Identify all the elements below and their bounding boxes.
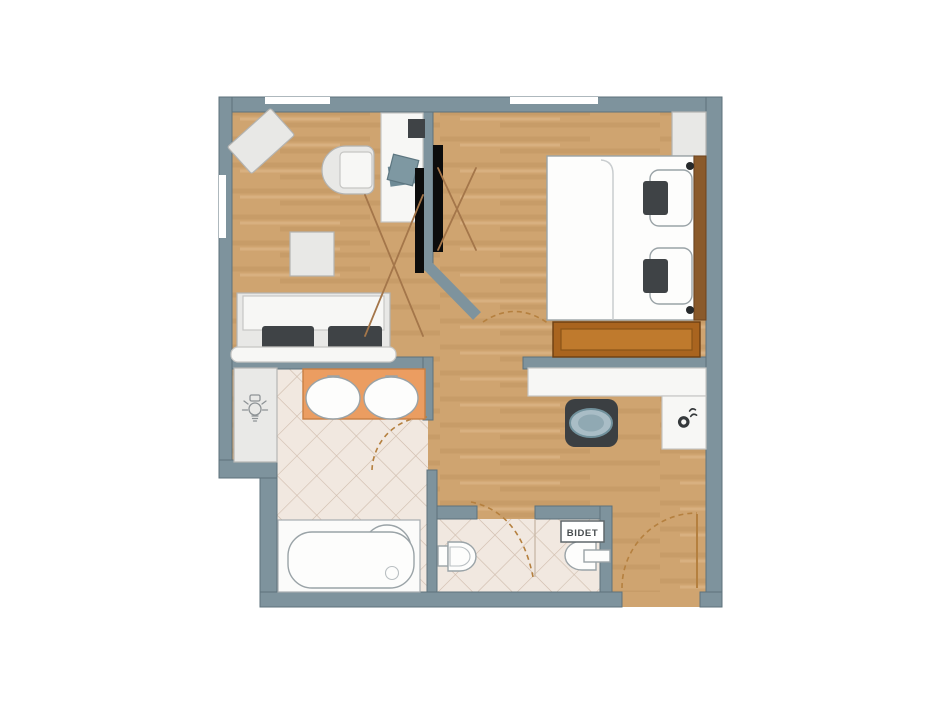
sink-right xyxy=(364,377,418,419)
window-notch-left xyxy=(219,175,226,238)
armchair-seat xyxy=(340,152,372,188)
sink-left xyxy=(306,377,360,419)
window-notch-top-left xyxy=(265,97,330,104)
tv-panel-desk-side xyxy=(415,168,424,273)
bed-bench-top xyxy=(561,329,692,350)
floor-plan-page: BIDET xyxy=(0,0,940,705)
pillow-cushion-top xyxy=(643,181,668,215)
reading-light-top xyxy=(686,162,694,170)
sofa-back-ledge xyxy=(231,347,396,362)
wall-bath-right xyxy=(427,470,437,592)
floor-plan: BIDET xyxy=(0,0,940,705)
wall-left-lower xyxy=(260,478,277,592)
sofa-cushion-left xyxy=(262,326,314,349)
toilet-tank xyxy=(438,546,448,566)
sofa-seat xyxy=(243,296,384,330)
wall-wc-right xyxy=(600,506,612,592)
wall-wc-top-left xyxy=(437,506,477,519)
wall-left-upper xyxy=(219,97,232,460)
pillow-cushion-bottom xyxy=(643,259,668,293)
sofa-cushion-right xyxy=(328,326,382,349)
entry-threshold xyxy=(622,592,700,607)
wall-wc-top-right xyxy=(535,506,600,519)
headboard xyxy=(694,156,706,320)
window-notch-top-right xyxy=(510,97,598,104)
desk-monitor xyxy=(408,119,425,138)
desk-chair-seat xyxy=(387,154,419,186)
bidet-spout xyxy=(584,550,610,562)
wall-bottom-right-span xyxy=(700,592,722,607)
minibar-counter xyxy=(662,396,706,449)
wall-right xyxy=(706,97,722,607)
tv-panel-bedroom-side xyxy=(433,145,443,252)
bathtub xyxy=(288,532,414,588)
wall-left-step xyxy=(219,460,277,478)
coffee-table xyxy=(290,232,334,276)
bidet-label: BIDET xyxy=(567,528,599,539)
wall-bottom-left-span xyxy=(260,592,622,607)
toilet-bowl xyxy=(448,542,476,571)
reading-light-bottom xyxy=(686,306,694,314)
nightstand xyxy=(672,112,706,156)
wall-hall-divider xyxy=(523,357,706,369)
stool-cushion-inner xyxy=(578,415,604,432)
console-shelf xyxy=(528,368,706,396)
